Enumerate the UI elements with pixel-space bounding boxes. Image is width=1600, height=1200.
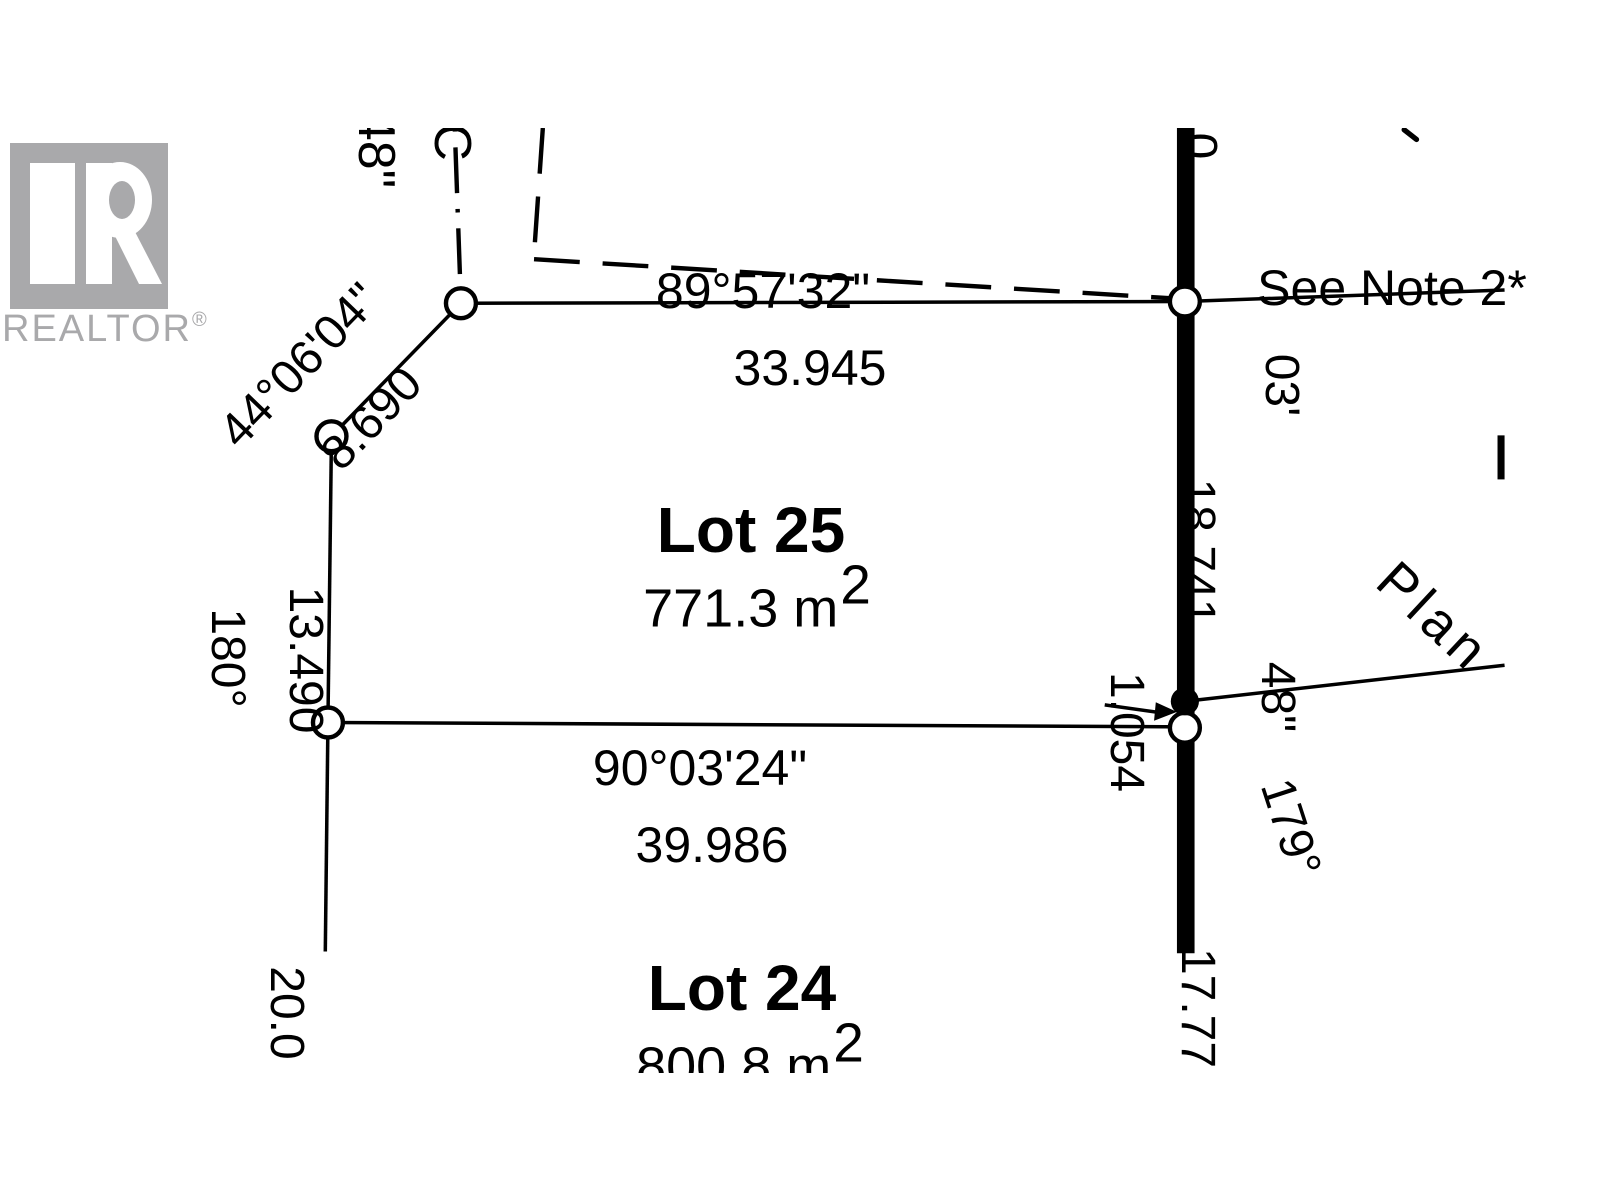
south-bearing-label: 90°03'24" [593,743,807,793]
registered-trademark-symbol: ® [192,309,207,331]
lot25-name: Lot 25 [657,498,845,562]
south-distance-label: 39.986 [636,820,789,870]
survey-pin-road-lower [1170,713,1200,743]
top-seconds-label: 48" [350,128,402,188]
lot24-name: Lot 24 [648,956,836,1020]
realtor-logo [10,143,168,309]
west-lower-distance-label: 20.0 [262,966,310,1059]
lot24-area-exponent: 2 [833,1011,864,1073]
lot25-area-exponent: 2 [840,553,871,615]
monument-dot [1171,687,1199,715]
realtor-wordmark: REALTOR® [2,308,192,351]
clipped-text-fragment [1498,435,1505,479]
tick-mark [1404,130,1416,140]
west-angle-label: 180° [203,608,251,707]
road-seconds-label: 48" [1253,662,1301,732]
road-partial-digit-label: 0 [1175,133,1223,160]
north-distance-label: 33.945 [734,343,887,393]
plat-page: REALTOR® 89°57'32" 33.945 See Note 2* Lo… [0,0,1600,1200]
lot25-area-value: 771.3 m [643,578,838,638]
west-distance-label: 13.490 [281,587,329,734]
south-boundary-line [328,722,1185,726]
north-bearing-label: 89°57'32" [656,266,870,316]
top-partial-letter: C [426,128,478,161]
lot24-area-value: 800.8 m [636,1036,831,1073]
lot24-area: 800.8 m2 [636,1038,864,1073]
realtor-brand-text: REALTOR [2,308,192,350]
west-lower-boundary-line [325,722,328,951]
lot25-area: 771.3 m2 [643,580,871,635]
dashed-line-vertical [534,128,543,255]
road-minutes-label: 03' [1257,354,1305,417]
road-distance-upper-label: 18.741 [1173,479,1221,626]
survey-pin-northwest-top [446,288,476,318]
survey-plat-drawing: REALTOR® 89°57'32" 33.945 See Note 2* Lo… [0,128,1600,1073]
survey-pin-road-upper [1170,287,1200,317]
see-note-label: See Note 2* [1257,263,1527,313]
offset-distance-label: 1.054 [1102,672,1150,792]
road-distance-lower-label: 17.77 [1173,948,1221,1068]
